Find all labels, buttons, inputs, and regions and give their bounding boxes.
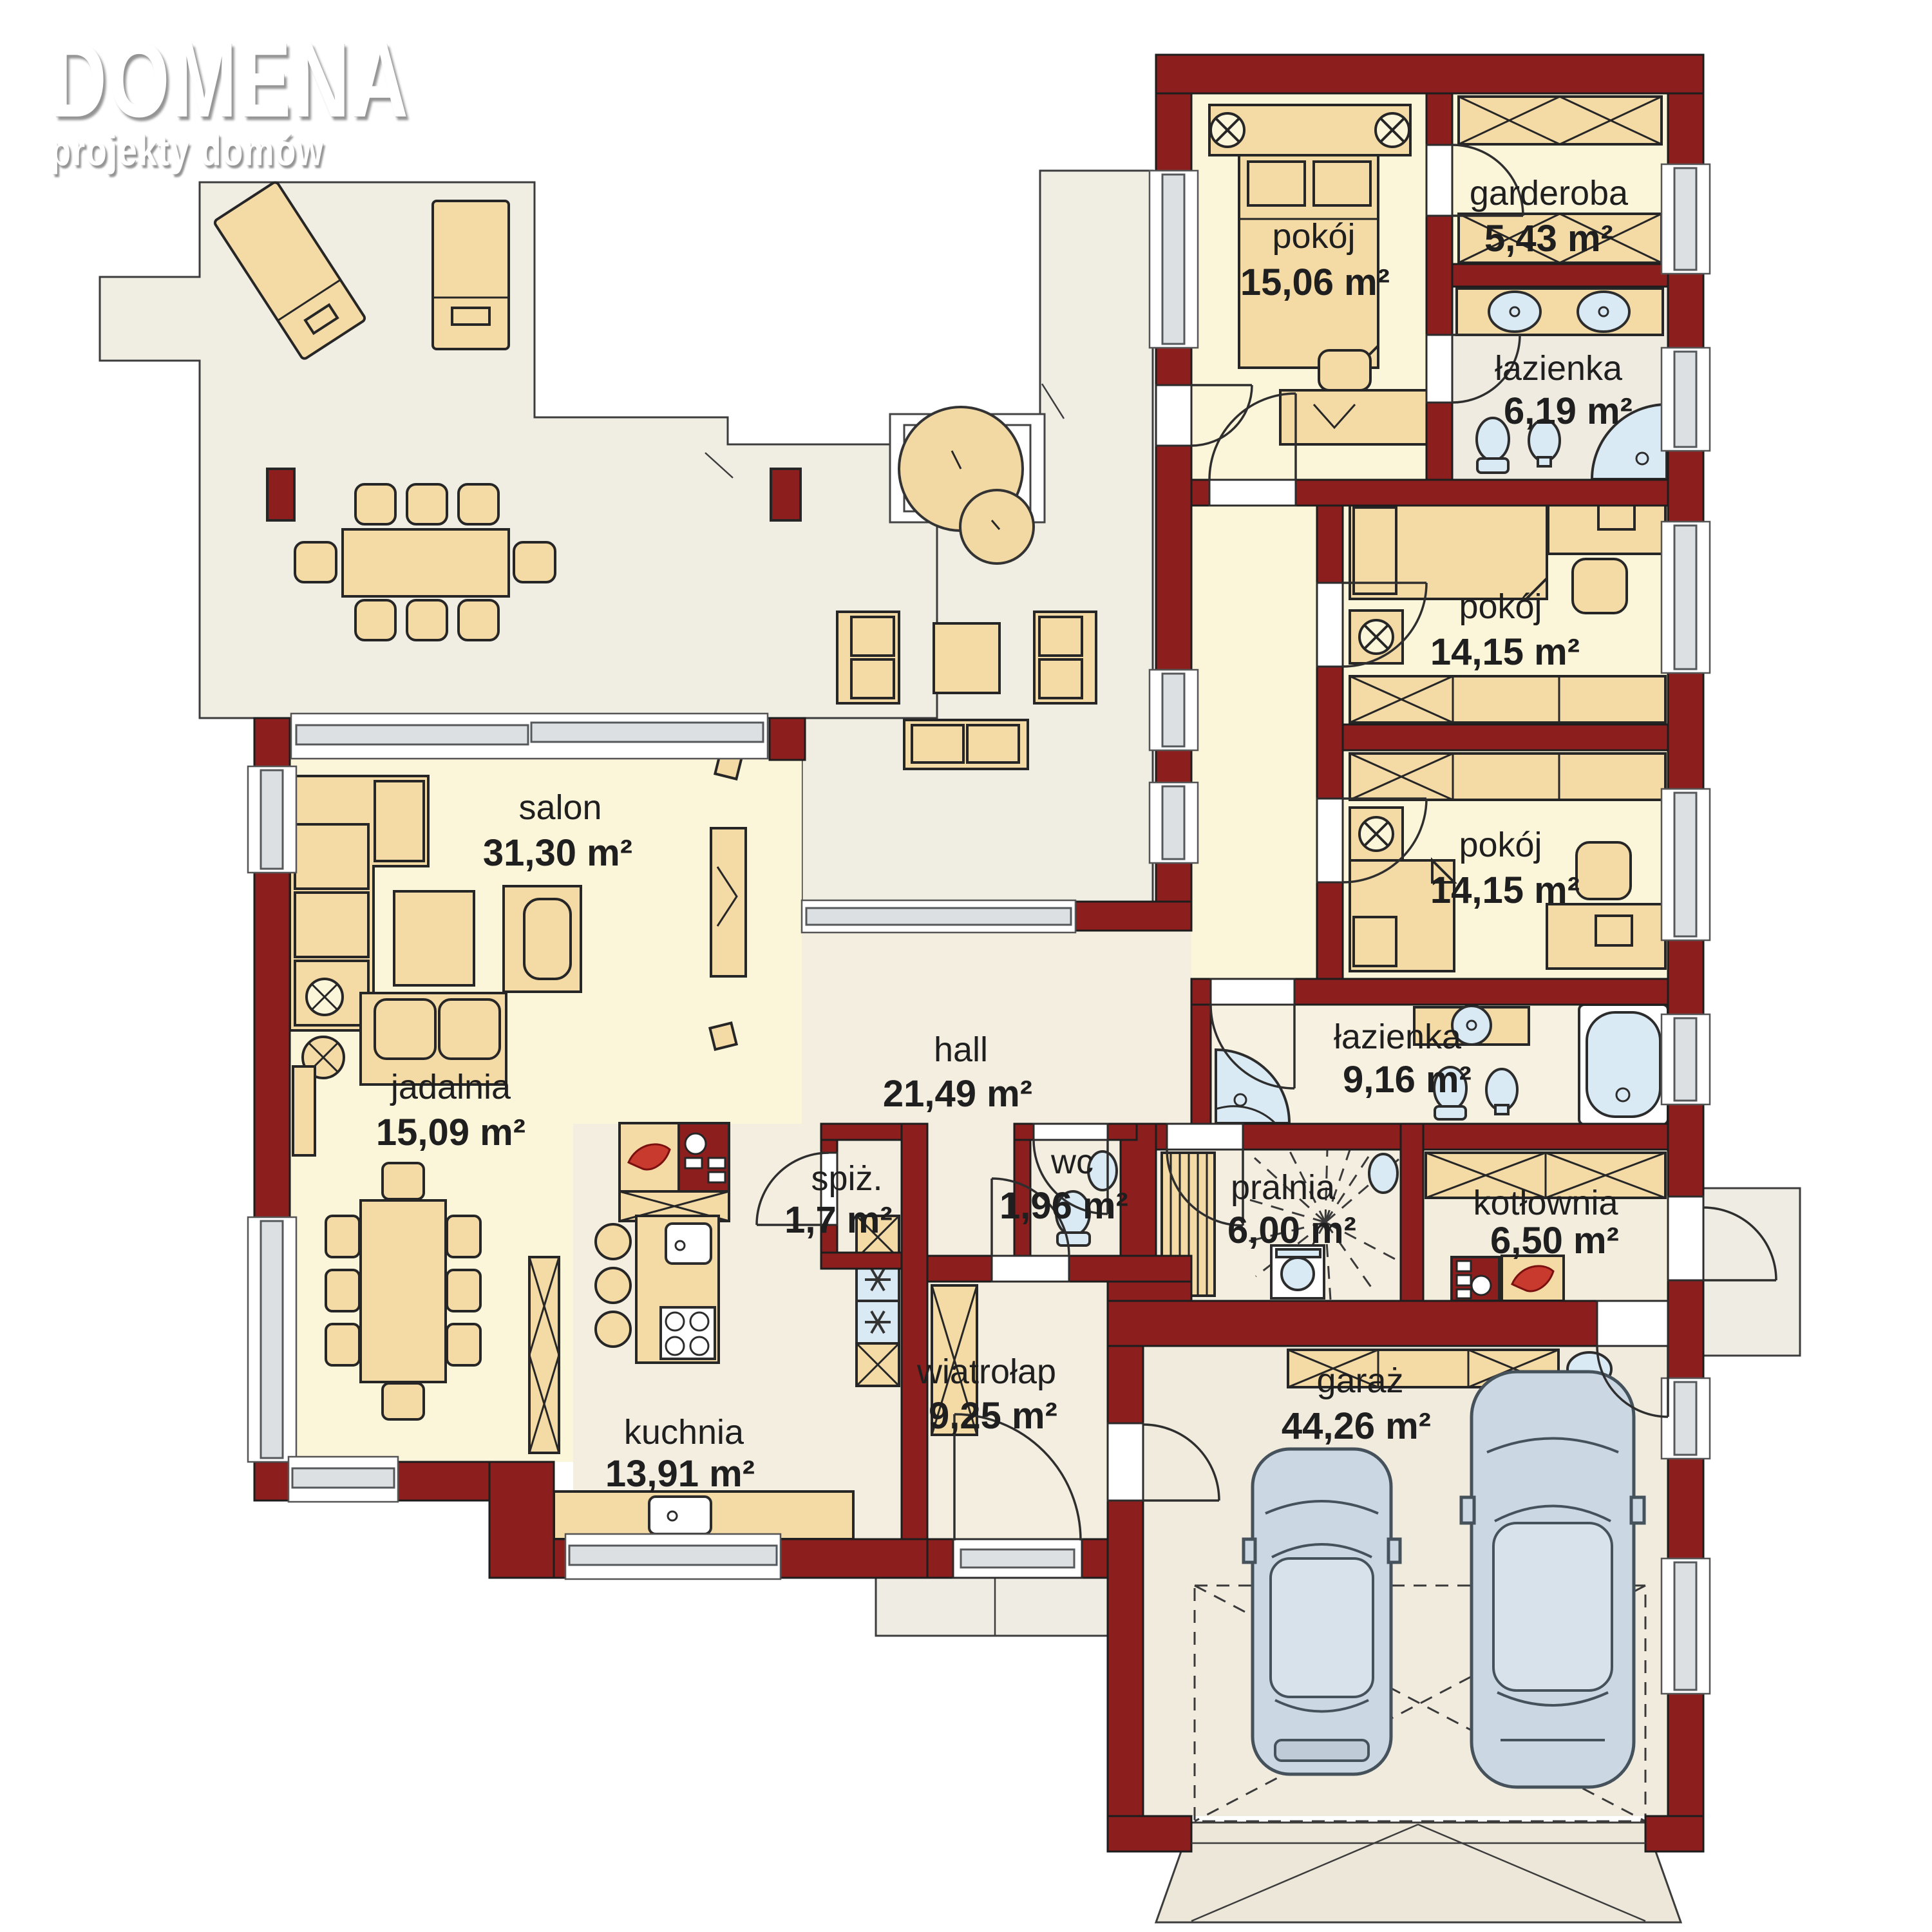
chair — [514, 542, 555, 582]
stool — [596, 1224, 630, 1259]
room-name: wc — [1050, 1142, 1094, 1181]
fireplace-stove-unit — [620, 1123, 729, 1191]
window — [1674, 526, 1696, 669]
stool — [596, 1312, 630, 1347]
room-name: wiatrołap — [916, 1352, 1056, 1391]
ceiling-lamp — [307, 979, 343, 1015]
chair — [459, 484, 498, 524]
monitor — [1596, 916, 1632, 945]
car-mirror — [1461, 1497, 1474, 1523]
divider-cabinet — [529, 1257, 559, 1453]
outdoor-sofa — [904, 720, 1028, 769]
room-name: salon — [518, 788, 601, 827]
car-mirror — [1631, 1497, 1644, 1523]
room-area: 14,15 m² — [1430, 869, 1580, 911]
wardrobe-strip — [1350, 753, 1665, 800]
window — [1674, 1018, 1696, 1101]
car — [1461, 1372, 1644, 1787]
room-area: 14,15 m² — [1430, 631, 1580, 673]
dining-table — [361, 1200, 446, 1382]
boiler — [1502, 1256, 1564, 1301]
room-area: 6,19 m² — [1504, 390, 1633, 432]
room-area: 9,25 m² — [929, 1395, 1057, 1437]
window — [1162, 786, 1184, 859]
sliding-door — [296, 725, 528, 744]
room-area: 1,7 m² — [784, 1199, 893, 1241]
room-area: 1,96 m² — [999, 1185, 1128, 1227]
desk-chair — [1577, 842, 1631, 899]
nightstand-lamp — [1350, 808, 1403, 860]
floor-plan-canvas: DOMENA projekty domów — [0, 0, 1932, 1932]
chair — [459, 600, 498, 640]
stool — [596, 1268, 630, 1303]
room-name: kuchnia — [624, 1413, 744, 1452]
room-name: łazienka — [1495, 349, 1623, 388]
chair — [447, 1270, 480, 1311]
room-name: garderoba — [1470, 174, 1629, 213]
chair — [447, 1216, 480, 1257]
chair — [355, 600, 395, 640]
room-area: 5,43 m² — [1484, 218, 1613, 260]
window — [1674, 1562, 1696, 1690]
room-area: 15,09 m² — [376, 1112, 526, 1153]
room-name: pokój — [1272, 217, 1355, 256]
room-area: 21,49 m² — [883, 1073, 1032, 1115]
chair — [326, 1324, 359, 1365]
room-area: 31,30 m² — [483, 832, 632, 874]
sun-lounger — [433, 201, 509, 349]
washing-machine — [1271, 1245, 1324, 1298]
window — [1674, 168, 1696, 270]
nightstand-lamp — [1350, 611, 1403, 663]
terrace-column — [267, 469, 294, 520]
room-area: 6,50 m² — [1490, 1220, 1619, 1262]
room-area: 9,16 m² — [1343, 1059, 1472, 1101]
bed — [1350, 502, 1547, 599]
chair — [326, 1216, 359, 1257]
room-name: łazienka — [1334, 1018, 1462, 1056]
outdoor-loveseat — [1034, 612, 1096, 703]
window — [261, 1221, 283, 1458]
room-name: kotłownia — [1473, 1184, 1618, 1222]
car-mirror — [1244, 1539, 1255, 1562]
sink — [1578, 292, 1629, 332]
window — [1674, 793, 1696, 936]
sideboard — [293, 1066, 315, 1155]
window — [1674, 352, 1696, 447]
side-porch — [1703, 1188, 1800, 1356]
window — [292, 1468, 394, 1488]
car — [1244, 1449, 1400, 1774]
window — [1674, 1382, 1696, 1455]
terrace-column — [771, 469, 800, 520]
chair — [383, 1163, 424, 1199]
room-area: 13,91 m² — [605, 1453, 755, 1495]
kitchen-counter — [554, 1492, 853, 1539]
chair — [295, 542, 336, 582]
chair — [1319, 350, 1370, 390]
armchair — [504, 886, 581, 992]
coffee-table — [394, 891, 474, 985]
room-name: hall — [934, 1030, 988, 1069]
desk-chair — [1573, 559, 1627, 613]
chair — [355, 484, 395, 524]
room-name: pokój — [1459, 826, 1542, 864]
terrace-upper — [100, 182, 937, 718]
car-mirror — [1388, 1539, 1400, 1562]
outdoor-table — [343, 529, 509, 596]
window — [1162, 175, 1184, 344]
window — [261, 770, 283, 869]
kitchen-island — [596, 1216, 719, 1363]
kitchen-sink — [649, 1497, 711, 1534]
island-sink — [666, 1224, 711, 1264]
room-area: 15,06 m² — [1240, 261, 1390, 303]
furnace-unit — [1452, 1257, 1499, 1301]
chair — [407, 484, 447, 524]
room-name: spiż. — [811, 1159, 882, 1198]
wardrobe-strip — [1350, 676, 1665, 723]
tall-cabinets-fridge — [857, 1216, 899, 1386]
window — [1162, 674, 1184, 746]
chair — [383, 1383, 424, 1419]
bathtub — [1579, 1005, 1668, 1124]
chair — [326, 1270, 359, 1311]
speaker — [710, 1023, 736, 1049]
laundry-sink — [1369, 1154, 1397, 1193]
room-name: garaż — [1316, 1361, 1403, 1400]
chair — [407, 600, 447, 640]
entry-porch — [876, 1578, 1114, 1636]
room-name: pralnia — [1231, 1168, 1336, 1207]
driveway — [1156, 1823, 1681, 1922]
room-name: pokój — [1459, 587, 1542, 626]
window — [569, 1546, 777, 1565]
tv-cabinet — [711, 828, 746, 976]
floor-plan: pokój 15,06 m² garderoba 5,43 m² łazienk… — [0, 0, 1932, 1932]
sliding-door — [806, 908, 1071, 925]
outdoor-loveseat — [837, 612, 899, 703]
room-name: jadalnia — [390, 1068, 511, 1106]
outdoor-coffee-table — [934, 623, 999, 693]
floor-corridor — [1191, 506, 1317, 979]
room-area: 6,00 m² — [1227, 1209, 1356, 1251]
sink — [1489, 292, 1540, 332]
entry-door — [961, 1549, 1074, 1567]
sliding-door — [531, 723, 763, 742]
chair — [447, 1324, 480, 1365]
room-area: 44,26 m² — [1282, 1405, 1431, 1447]
